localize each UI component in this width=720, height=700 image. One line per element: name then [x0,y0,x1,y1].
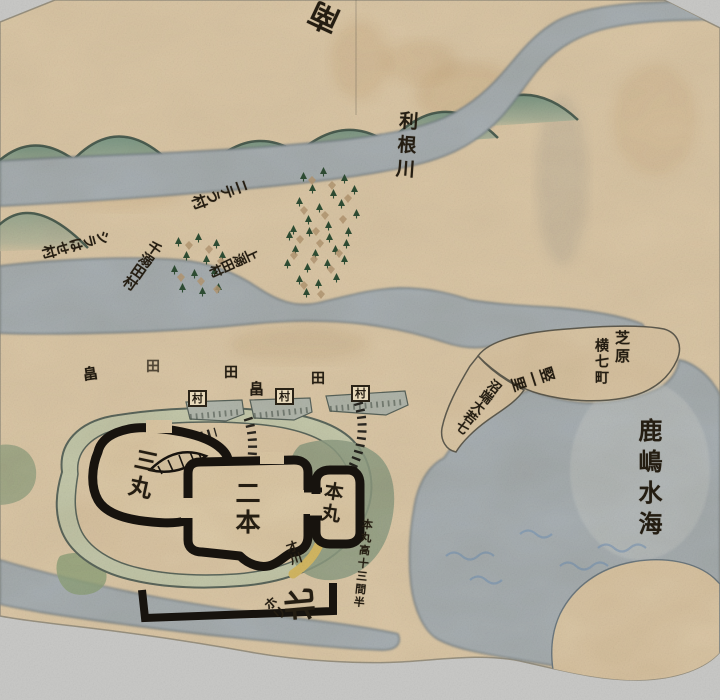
map-canvas [0,0,720,700]
map-photo: 南 北 利根川 ニテう村 シラはせ村 千溺田村 上溺田村 芝原 横七町 竪一里 … [0,0,720,700]
